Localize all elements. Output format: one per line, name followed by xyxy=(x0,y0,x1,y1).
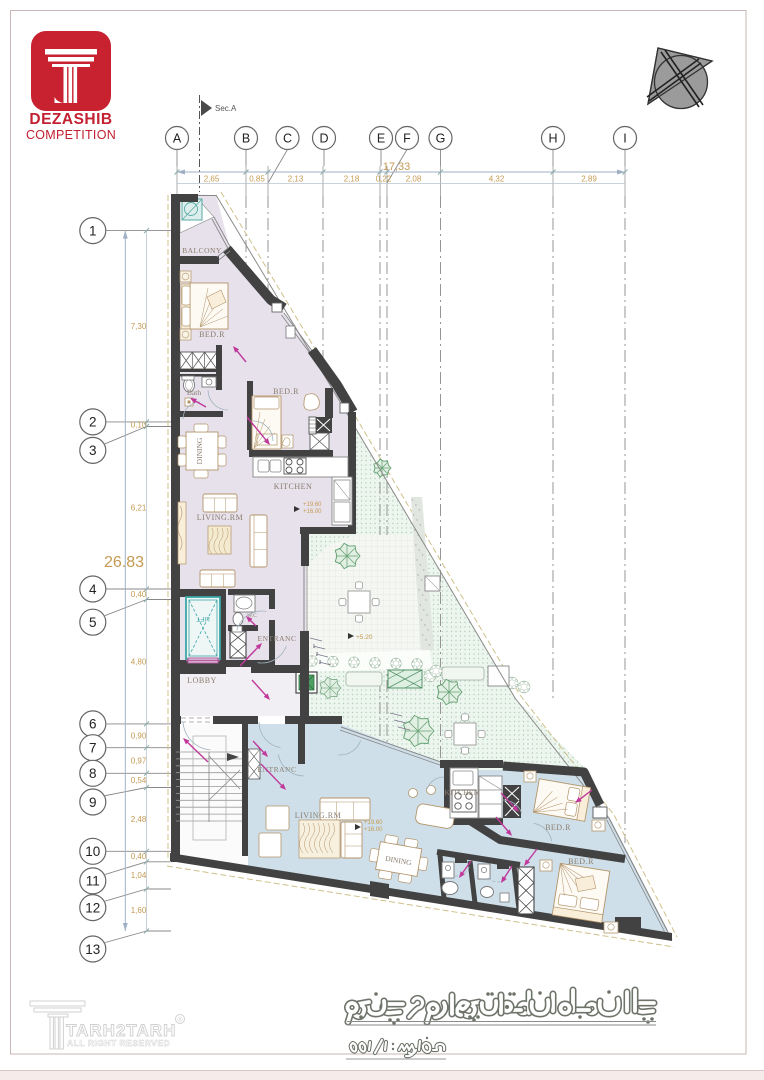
svg-text:C: C xyxy=(283,131,292,145)
svg-text:BED.R: BED.R xyxy=(568,857,594,866)
svg-text:+16.00: +16.00 xyxy=(364,827,383,833)
svg-text:+19.60: +19.60 xyxy=(364,820,383,826)
svg-text:12: 12 xyxy=(85,900,100,915)
svg-text:0,40: 0,40 xyxy=(131,852,147,861)
svg-text:2,13: 2,13 xyxy=(288,175,304,184)
svg-text:9: 9 xyxy=(89,795,97,810)
svg-text:1: 1 xyxy=(89,223,97,238)
svg-text:LIVING.RM: LIVING.RM xyxy=(295,811,342,820)
svg-text:ALL RIGHT RESERVED: ALL RIGHT RESERVED xyxy=(67,1038,170,1048)
svg-text:2: 2 xyxy=(89,415,97,430)
svg-text:0,22: 0,22 xyxy=(376,175,392,184)
svg-text:®: ® xyxy=(177,1016,183,1024)
svg-text:BALCONY: BALCONY xyxy=(182,246,222,255)
svg-text:H: H xyxy=(548,131,557,145)
svg-text:LIFT: LIFT xyxy=(196,615,209,622)
svg-text:ENTRANC: ENTRANC xyxy=(258,634,297,643)
svg-text:F: F xyxy=(403,131,411,145)
svg-text:LIVING.RM: LIVING.RM xyxy=(197,513,244,522)
svg-text:7: 7 xyxy=(89,741,97,756)
svg-text:Sec.A: Sec.A xyxy=(215,104,237,113)
svg-text:1,60: 1,60 xyxy=(131,906,147,915)
svg-text:11: 11 xyxy=(86,874,100,889)
svg-text:+19.60: +19.60 xyxy=(303,502,322,508)
svg-text:10: 10 xyxy=(85,844,100,859)
svg-text:1,04: 1,04 xyxy=(131,871,147,880)
svg-text:BED.R: BED.R xyxy=(545,823,571,832)
svg-text:5: 5 xyxy=(89,615,97,630)
svg-text:KITCHEN: KITCHEN xyxy=(274,482,313,491)
svg-text:4: 4 xyxy=(89,582,97,597)
svg-text:COMPETITION: COMPETITION xyxy=(26,128,116,142)
svg-text:26.83: 26.83 xyxy=(104,554,144,571)
svg-text:1: 1 xyxy=(313,644,316,650)
svg-text:KITCHEN: KITCHEN xyxy=(444,788,479,797)
svg-text:0,85: 0,85 xyxy=(249,175,265,184)
svg-text:2,48: 2,48 xyxy=(131,815,147,824)
svg-text:0,54: 0,54 xyxy=(131,776,147,785)
svg-text:I: I xyxy=(623,131,626,145)
svg-text:Bath: Bath xyxy=(187,388,201,397)
svg-text:DEZASHIB: DEZASHIB xyxy=(29,111,112,128)
svg-text:17,33: 17,33 xyxy=(383,161,411,173)
svg-text:2,89: 2,89 xyxy=(581,175,597,184)
svg-text:0,40: 0,40 xyxy=(131,590,147,599)
svg-text:4,32: 4,32 xyxy=(489,175,505,184)
svg-text:8: 8 xyxy=(89,766,97,781)
svg-text:0,97: 0,97 xyxy=(131,756,147,765)
svg-text:4,80: 4,80 xyxy=(131,658,147,667)
svg-text:0,90: 0,90 xyxy=(131,732,147,741)
svg-text:13: 13 xyxy=(85,942,100,957)
svg-text:A: A xyxy=(173,131,182,145)
svg-text:DINING: DINING xyxy=(195,437,204,464)
svg-text:D: D xyxy=(319,131,328,145)
svg-text:2,18: 2,18 xyxy=(344,175,360,184)
svg-text:2: 2 xyxy=(316,652,319,658)
svg-text:B: B xyxy=(242,131,250,145)
svg-text:E: E xyxy=(377,131,385,145)
svg-text:2,08: 2,08 xyxy=(406,175,422,184)
svg-text:G: G xyxy=(436,131,446,145)
svg-text:3: 3 xyxy=(319,660,322,666)
svg-text:3: 3 xyxy=(89,443,97,458)
svg-text:+5.20: +5.20 xyxy=(356,634,373,641)
svg-text:BED.R: BED.R xyxy=(199,330,225,339)
svg-text:BED.R: BED.R xyxy=(273,387,299,396)
svg-text:7,30: 7,30 xyxy=(131,322,147,331)
svg-text:+16.00: +16.00 xyxy=(303,509,322,515)
svg-text:6: 6 xyxy=(89,717,97,732)
svg-text:0,10: 0,10 xyxy=(131,420,147,429)
svg-text:2,65: 2,65 xyxy=(204,175,220,184)
svg-text:6,21: 6,21 xyxy=(131,504,147,513)
svg-text:LOBBY: LOBBY xyxy=(187,676,217,685)
